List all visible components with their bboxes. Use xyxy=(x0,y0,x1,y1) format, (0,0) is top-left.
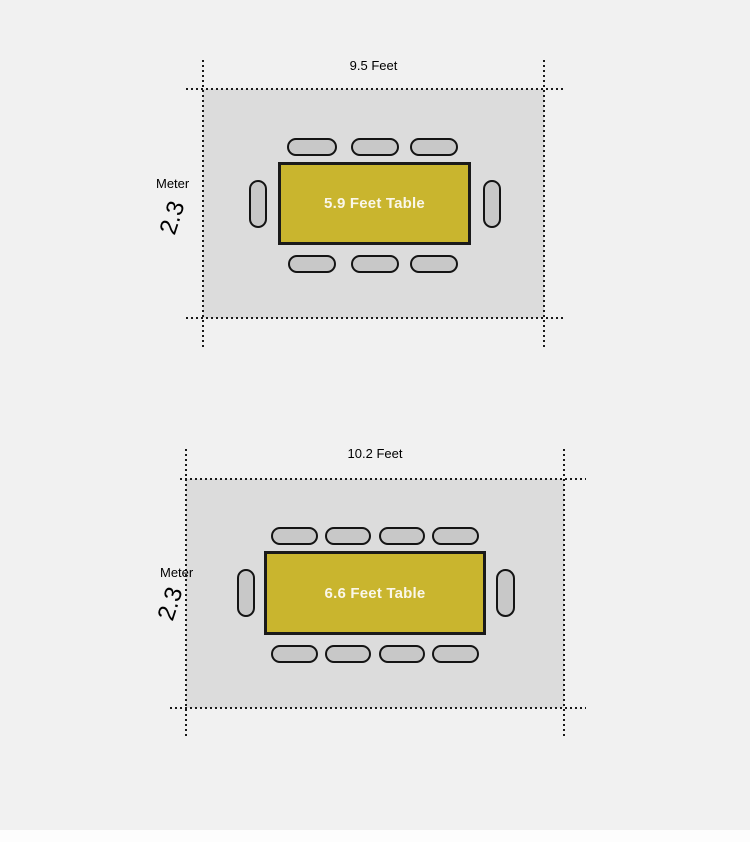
width-dimension-label: 10.2 Feet xyxy=(186,446,564,461)
chair xyxy=(325,527,371,545)
diagram-10-seat: 10.2 Feet Meter 2.3 6.6 Feet Table xyxy=(0,0,750,842)
chair xyxy=(432,527,479,545)
dining-table: 6.6 Feet Table xyxy=(264,551,486,635)
dimension-line-bottom xyxy=(170,707,586,709)
dimension-line-top xyxy=(180,478,586,480)
chair xyxy=(432,645,479,663)
chair xyxy=(325,645,371,663)
chair xyxy=(379,527,425,545)
dimension-line-right xyxy=(563,449,565,737)
chair xyxy=(496,569,515,617)
table-size-label: 6.6 Feet Table xyxy=(325,585,426,602)
chair xyxy=(379,645,425,663)
footer-strip xyxy=(0,830,750,842)
chair xyxy=(271,645,318,663)
chair xyxy=(237,569,255,617)
height-unit-label: Meter xyxy=(160,565,193,580)
chair xyxy=(271,527,318,545)
dining-table-size-diagram: 9.5 Feet Meter 2.3 5.9 Feet Table 10.2 F… xyxy=(0,0,750,842)
